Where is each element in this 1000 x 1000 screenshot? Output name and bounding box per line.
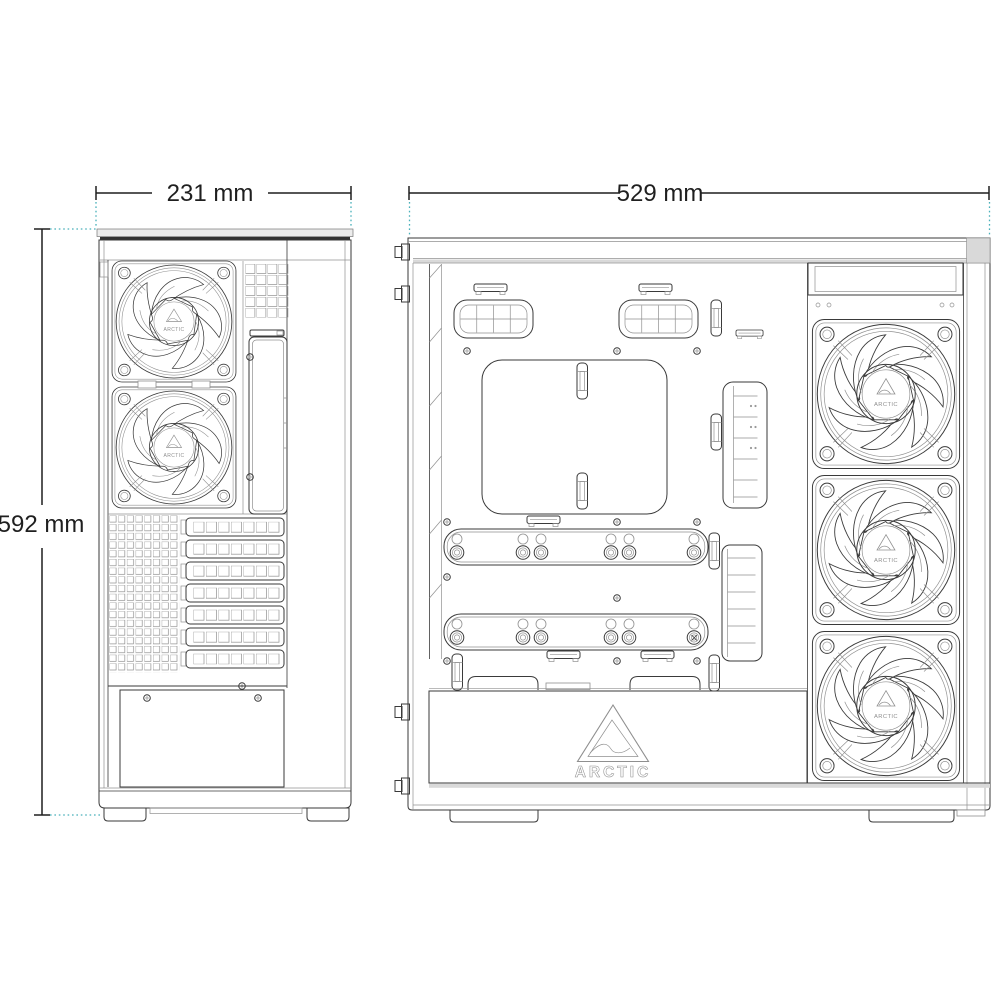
extension-lines: [50, 202, 990, 815]
drive-rail-1: [444, 529, 708, 565]
rear-bottom: [99, 788, 351, 821]
expansion-slots: [181, 518, 284, 668]
cable-grommet-1: [454, 300, 533, 338]
front-fan-3-brand: ARCTIC: [874, 714, 898, 720]
arctic-logo: ARCTIC: [575, 705, 652, 781]
rear-edge-channel: [430, 264, 442, 659]
cpu-cutout: [482, 360, 667, 514]
rear-fan-2: ARCTIC: [112, 387, 236, 508]
drive-rail-2: [444, 614, 708, 650]
cable-grommet-2: [619, 300, 698, 338]
front-fan-2: ARCTIC: [812, 475, 959, 624]
front-panel-edge: [964, 263, 986, 810]
dimension-front-width: 231 mm: [96, 180, 351, 207]
cable-cover-lower: [722, 545, 762, 661]
rear-fan-1-brand: ARCTIC: [163, 327, 184, 333]
front-fan-1-brand: ARCTIC: [874, 402, 898, 408]
height-label: 592 mm: [0, 511, 84, 538]
cable-tie-slots: [452, 300, 722, 691]
front-fan-1: ARCTIC: [812, 319, 959, 468]
arctic-logo-text: ARCTIC: [575, 764, 652, 781]
side-bottom: [413, 783, 990, 822]
front-fan-column: ARCTIC ARCTIC ARCTIC: [808, 263, 964, 783]
rear-thumbscrews: [395, 244, 410, 794]
rear-view: ARCTIC ARCTIC: [97, 229, 353, 821]
rear-side-vent-grid: [110, 516, 180, 673]
front-fan-2-brand: ARCTIC: [874, 558, 898, 564]
side-foot-left: [450, 810, 538, 822]
rear-top-trim: [97, 229, 353, 237]
dimension-height: 592 mm: [0, 229, 84, 815]
rear-fan-2-brand: ARCTIC: [163, 453, 184, 459]
cable-clips: [474, 284, 763, 662]
front-width-label: 231 mm: [167, 180, 254, 207]
dimension-side-depth: 529 mm: [409, 180, 989, 207]
psu-bay: [108, 683, 287, 787]
side-foot-right: [869, 810, 954, 822]
rear-io-slot: [250, 330, 284, 336]
rear-fan-1: ARCTIC: [112, 261, 236, 382]
side-view: ARCTIC ARCTIC ARCTIC ARCTIC: [395, 238, 990, 822]
front-fan-3: ARCTIC: [812, 631, 959, 780]
rear-foot-right: [307, 808, 349, 821]
psu-shroud: ARCTIC: [429, 688, 807, 783]
rear-top-vent-grid: [246, 264, 290, 317]
side-depth-label: 529 mm: [617, 180, 704, 207]
rear-io-panel: [247, 337, 287, 514]
diagram-canvas: 231 mm 529 mm 592 mm AR: [0, 0, 1000, 1000]
cable-cover-upper: [723, 382, 767, 508]
fan-bracket: [808, 263, 963, 295]
technical-drawing: 231 mm 529 mm 592 mm AR: [0, 0, 1000, 1000]
rear-foot-left: [104, 808, 146, 821]
front-top-block: [967, 238, 991, 263]
